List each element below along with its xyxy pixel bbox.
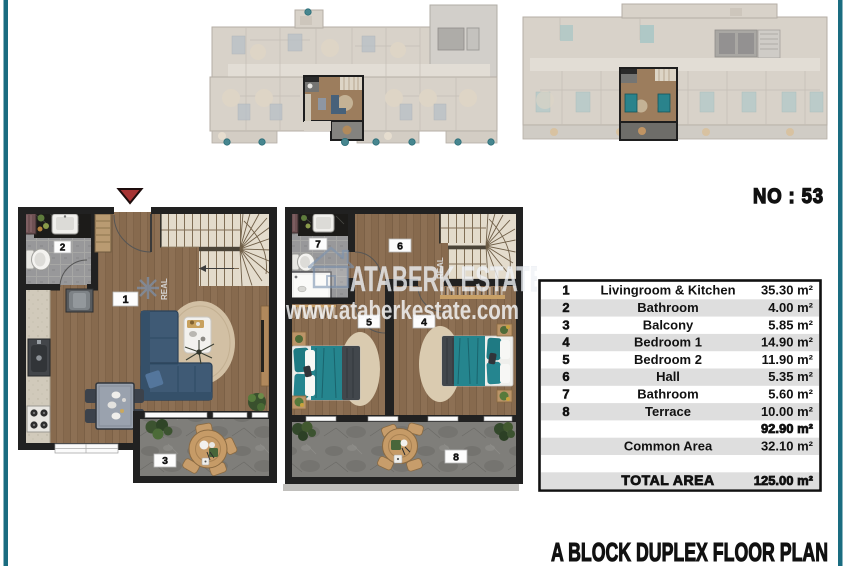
svg-text:Hall: Hall (656, 369, 680, 384)
svg-text:www.ataberkestate.com: www.ataberkestate.com (285, 296, 519, 325)
svg-text:8: 8 (453, 452, 459, 464)
svg-text:4: 4 (562, 335, 570, 350)
svg-text:NO : 53: NO : 53 (753, 185, 824, 208)
svg-text:5.35 m²: 5.35 m² (768, 369, 813, 384)
svg-text:6: 6 (397, 241, 403, 253)
svg-text:A BLOCK DUPLEX FLOOR PLAN: A BLOCK DUPLEX FLOOR PLAN (551, 537, 828, 566)
svg-text:3: 3 (562, 317, 569, 332)
svg-text:Balcony: Balcony (643, 317, 694, 332)
svg-text:TOTAL AREA: TOTAL AREA (621, 472, 714, 488)
svg-text:5.60 m²: 5.60 m² (768, 387, 813, 402)
svg-text:Terrace: Terrace (645, 404, 691, 419)
svg-text:2: 2 (60, 243, 66, 254)
svg-text:Common Area: Common Area (624, 438, 713, 453)
svg-text:ATABERK ESTATE: ATABERK ESTATE (350, 261, 544, 299)
svg-text:1: 1 (562, 283, 569, 298)
svg-text:Bedroom 1: Bedroom 1 (634, 335, 702, 350)
svg-text:92.90 m²: 92.90 m² (761, 421, 814, 436)
svg-text:Livingroom & Kitchen: Livingroom & Kitchen (600, 283, 735, 298)
svg-text:6: 6 (562, 369, 569, 384)
svg-text:4.00 m²: 4.00 m² (768, 300, 813, 315)
svg-text:10.00 m²: 10.00 m² (761, 404, 814, 419)
svg-text:5.85 m²: 5.85 m² (768, 317, 813, 332)
svg-text:Bathroom: Bathroom (637, 387, 698, 402)
svg-text:2: 2 (562, 300, 569, 315)
svg-text:14.90 m²: 14.90 m² (761, 335, 814, 350)
svg-text:7: 7 (315, 240, 321, 251)
svg-text:Bathroom: Bathroom (637, 300, 698, 315)
svg-text:7: 7 (562, 387, 569, 402)
svg-text:8: 8 (562, 404, 569, 419)
svg-text:32.10 m²: 32.10 m² (761, 438, 814, 453)
svg-text:125.00 m²: 125.00 m² (754, 473, 814, 488)
svg-text:3: 3 (162, 455, 168, 467)
svg-text:35.30 m²: 35.30 m² (761, 283, 814, 298)
svg-text:1: 1 (122, 294, 128, 306)
svg-text:Bedroom 2: Bedroom 2 (634, 352, 702, 367)
svg-text:REAL: REAL (160, 278, 169, 300)
svg-text:11.90 m²: 11.90 m² (762, 352, 814, 367)
svg-text:5: 5 (562, 352, 569, 367)
